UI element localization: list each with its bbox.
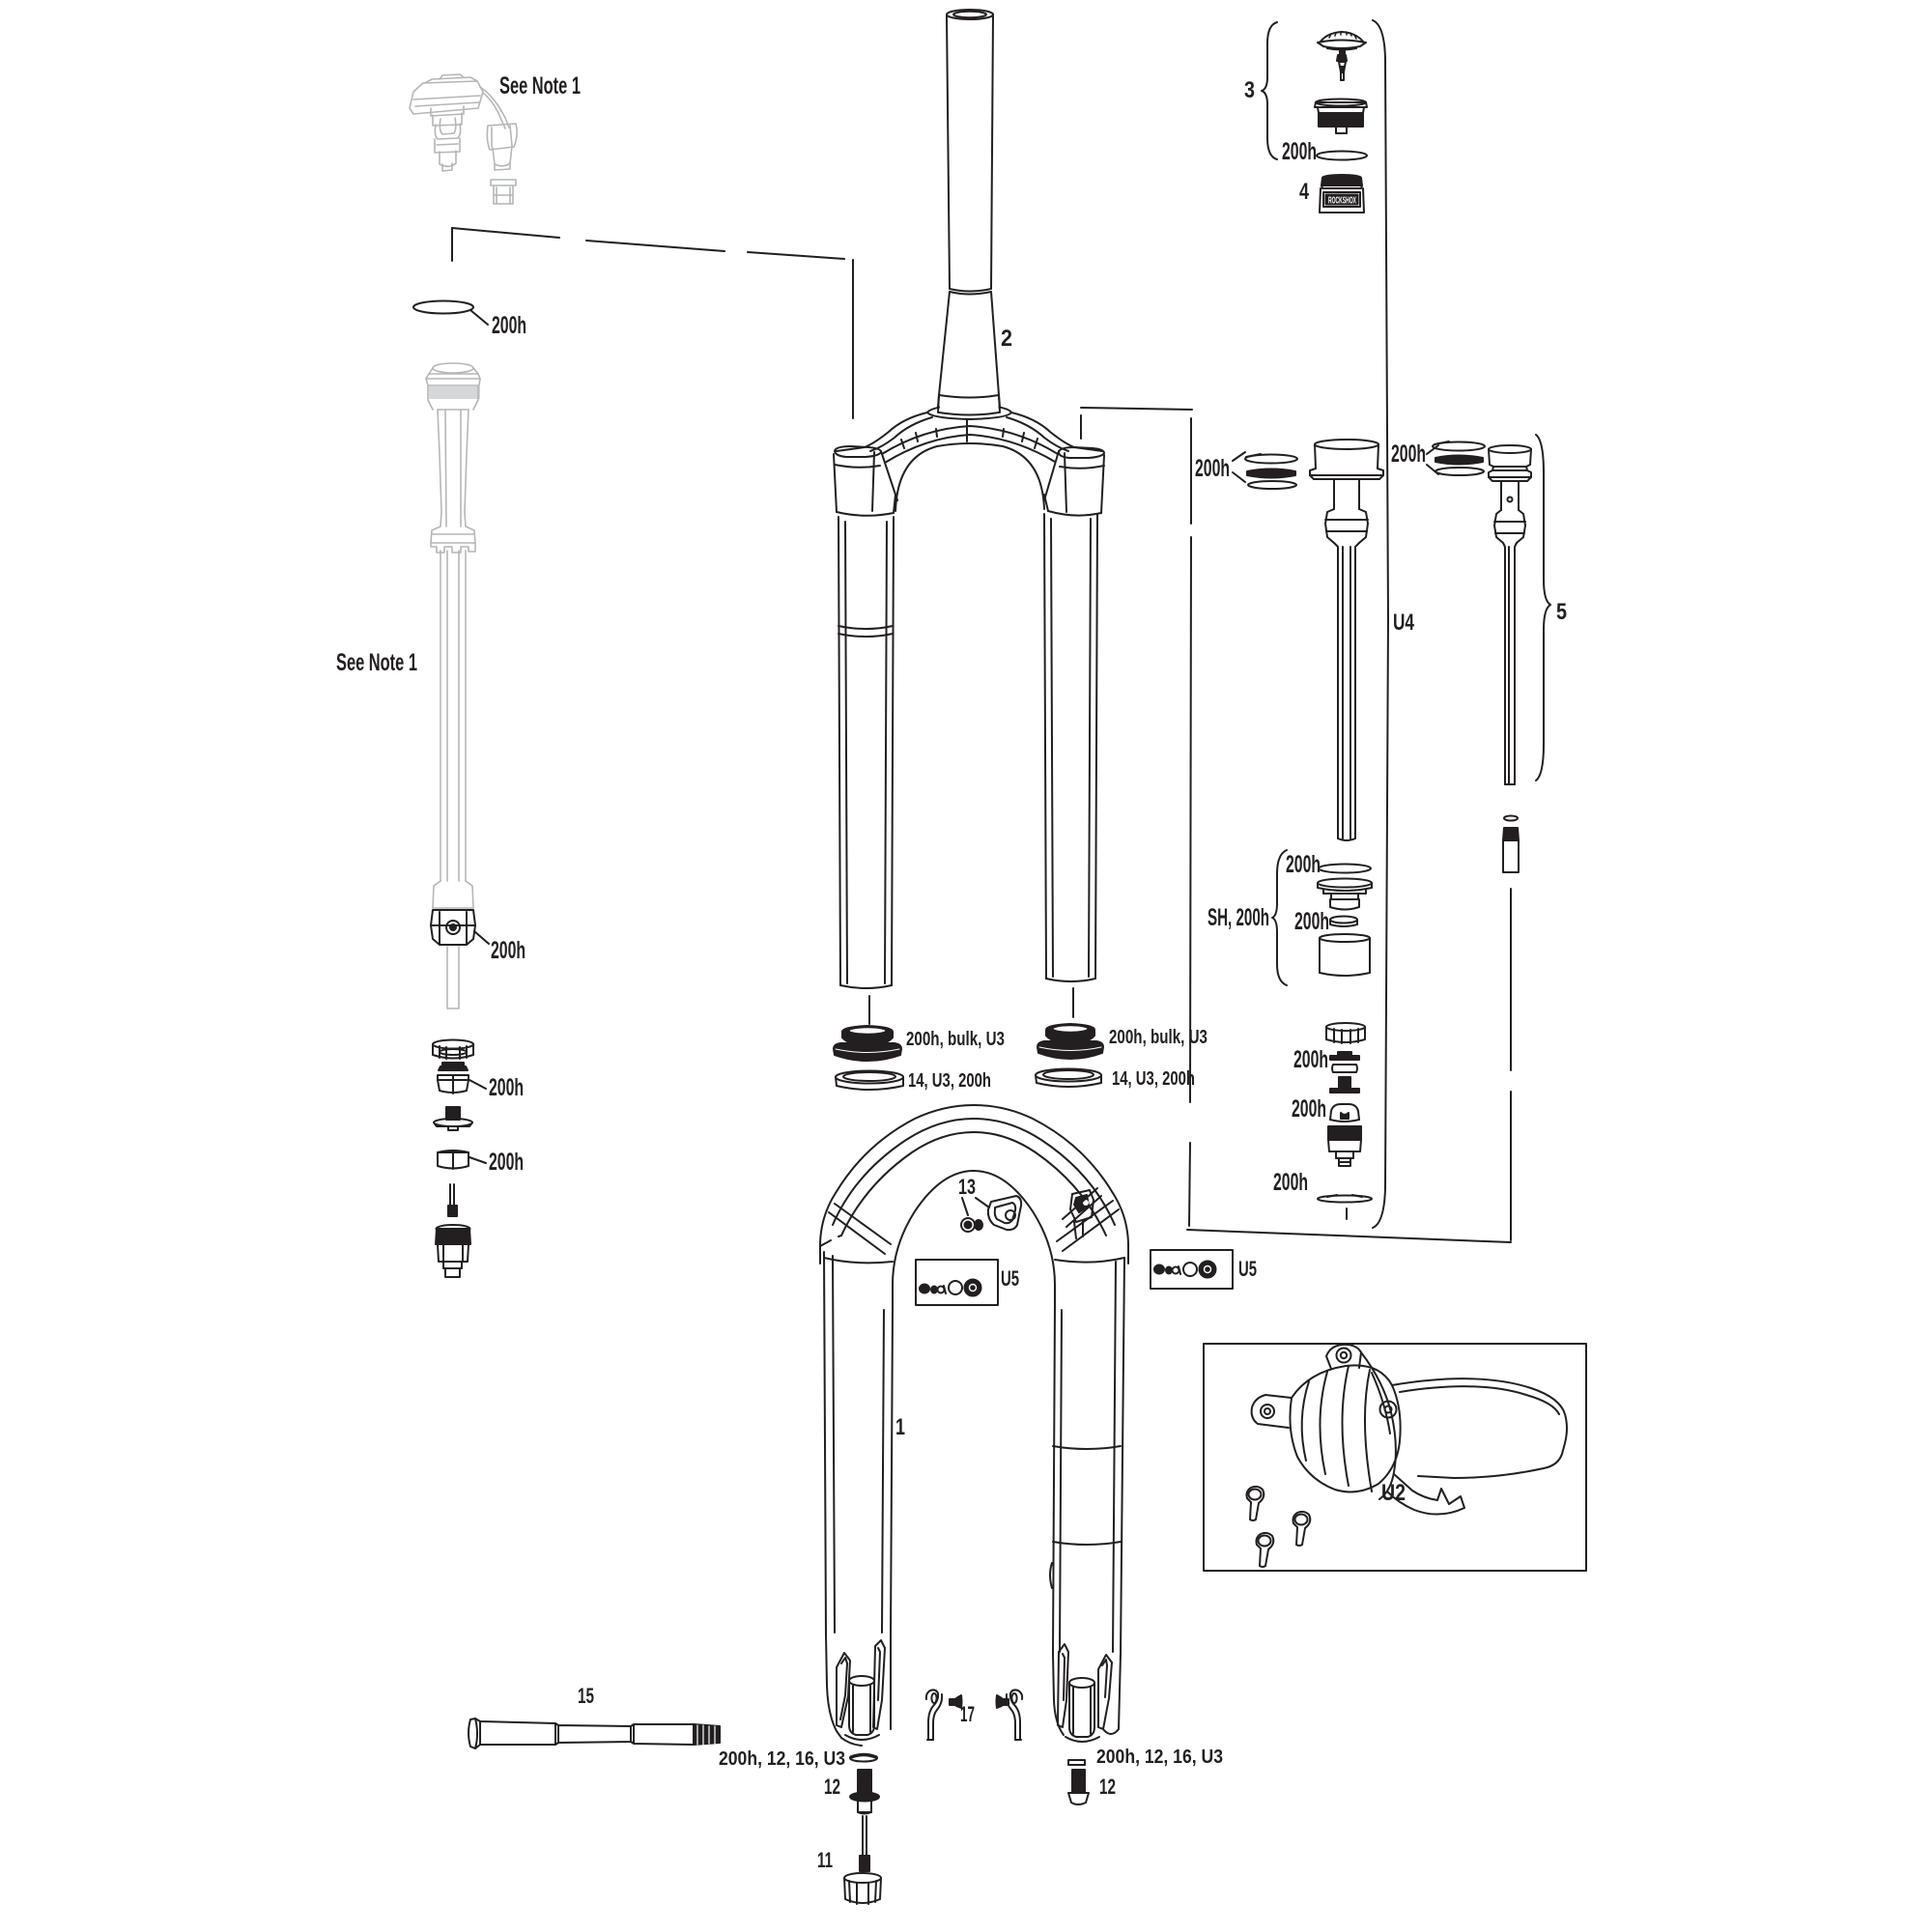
svg-text:200h: 200h [1391,440,1426,468]
svg-text:200h: 200h [1293,1046,1328,1073]
svg-text:12: 12 [1099,1775,1116,1799]
svg-text:200h: 200h [1294,908,1329,935]
svg-text:200h: 200h [491,937,526,964]
svg-text:U5: U5 [1001,1266,1019,1291]
svg-text:200h: 200h [1273,1169,1308,1196]
svg-text:ROCKSHOX: ROCKSHOX [1328,196,1356,207]
svg-text:2: 2 [1001,326,1012,352]
svg-text:15: 15 [578,1684,594,1708]
svg-text:200h, bulk, U3: 200h, bulk, U3 [1109,1026,1207,1048]
svg-text:200h: 200h [489,1149,524,1176]
svg-text:200h, bulk, U3: 200h, bulk, U3 [906,1028,1005,1050]
svg-text:4: 4 [1299,179,1309,205]
svg-text:200h: 200h [1286,851,1321,878]
svg-text:U5: U5 [1238,1257,1257,1281]
svg-text:200h: 200h [1195,455,1230,482]
svg-text:200h, 12, 16, U3: 200h, 12, 16, U3 [1096,1746,1223,1768]
svg-text:1: 1 [895,1414,905,1440]
svg-text:See Note 1: See Note 1 [336,649,417,676]
svg-text:200h: 200h [1282,138,1317,165]
svg-text:3: 3 [1244,77,1255,103]
svg-text:U2: U2 [1381,1480,1406,1506]
svg-text:U4: U4 [1393,610,1414,636]
svg-text:17: 17 [960,1702,975,1726]
svg-text:14, U3, 200h: 14, U3, 200h [1112,1067,1195,1090]
svg-text:200h, 12, 16, U3: 200h, 12, 16, U3 [719,1747,845,1770]
svg-text:See Note 1: See Note 1 [499,72,581,99]
svg-text:14, U3, 200h: 14, U3, 200h [908,1069,991,1092]
svg-text:200h: 200h [1292,1095,1326,1122]
svg-text:11: 11 [817,1848,833,1872]
svg-text:12: 12 [824,1775,840,1799]
svg-text:SH, 200h: SH, 200h [1207,904,1269,931]
svg-text:200h: 200h [492,312,526,339]
svg-text:13: 13 [958,1175,976,1199]
svg-text:5: 5 [1556,599,1567,625]
svg-text:200h: 200h [489,1074,524,1101]
